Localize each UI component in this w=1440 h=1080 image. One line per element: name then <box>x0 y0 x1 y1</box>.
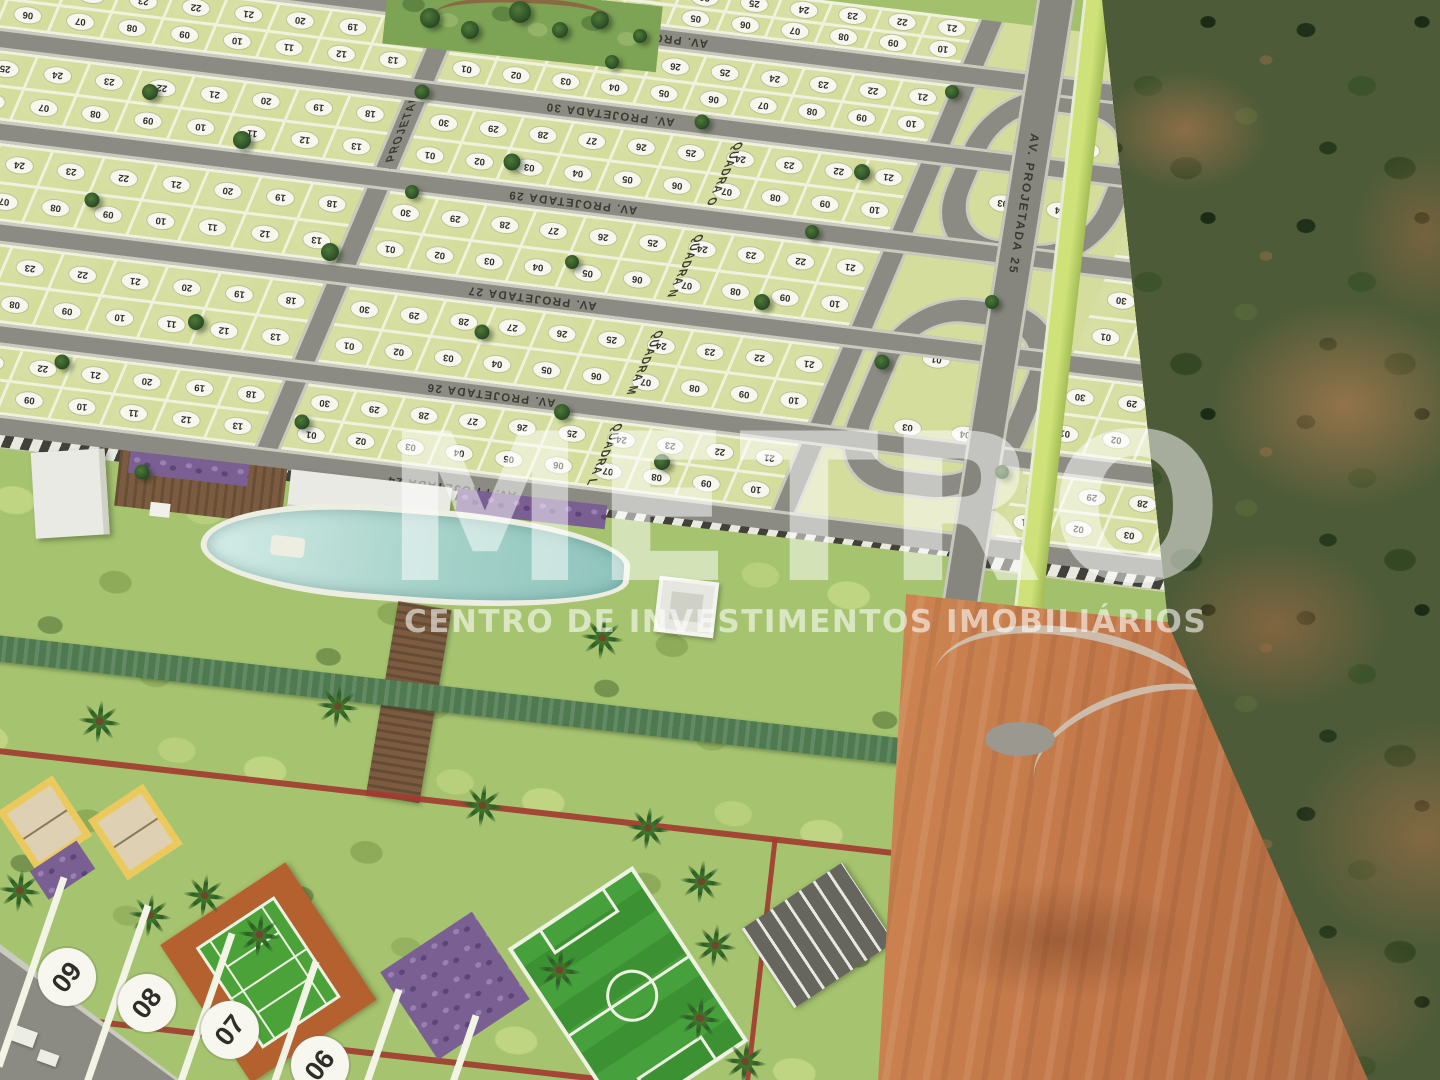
tree-bush <box>591 11 609 29</box>
lot-number-badge: 09 <box>879 33 908 52</box>
lot-number-badge: 25 <box>676 144 705 163</box>
tree-bush <box>405 185 419 199</box>
lot-cell: 28 <box>513 118 572 153</box>
lot-number-badge: 28 <box>528 126 557 145</box>
palm-tree-icon <box>677 857 726 906</box>
lot-number-badge: 12 <box>290 130 319 149</box>
lot-number-badge: 05 <box>574 264 603 283</box>
lot-number-badge: 23 <box>130 0 159 11</box>
lot-number-badge: 22 <box>888 13 917 32</box>
palm-tree-icon <box>578 613 627 662</box>
lot-number-badge: 23 <box>809 75 838 94</box>
lot-cell: 19 <box>287 90 349 125</box>
lot-number-badge: 23 <box>57 162 86 181</box>
lot-number-badge: 10 <box>222 32 251 51</box>
lot-number-badge: 21 <box>795 354 824 373</box>
lot-number-badge: 21 <box>755 448 784 467</box>
lot-cell: 09 <box>677 466 736 500</box>
lot-cell: 23 <box>795 69 852 99</box>
tree-bush <box>695 115 710 130</box>
lot-cell: 07 <box>767 19 821 42</box>
lot-cell: 03 <box>1099 518 1159 553</box>
lot-cell: 09 <box>866 31 920 54</box>
lot-number-badge: 30 <box>351 299 380 318</box>
lot-cell: 20 <box>116 364 177 399</box>
lot-number-badge: 10 <box>67 397 96 416</box>
tree-bush <box>854 164 870 180</box>
lot-number-badge: 08 <box>830 27 859 46</box>
lot-number-badge: 06 <box>699 90 728 109</box>
lot-number-badge: 13 <box>342 137 371 156</box>
lot-cell: 28 <box>394 398 453 432</box>
lot-number-badge: 21 <box>81 366 110 385</box>
lot-number-badge: 29 <box>400 306 429 325</box>
lot-cell: 10 <box>915 37 969 60</box>
lot-cell: 07 <box>734 91 791 121</box>
lot-number-badge: 10 <box>741 480 770 499</box>
palm-tree-icon <box>0 866 44 915</box>
palm-tree-icon <box>313 682 362 731</box>
tree-bush <box>85 193 100 208</box>
dirt-pond <box>985 722 1055 756</box>
lot-cell: 21 <box>64 358 125 393</box>
lot-number-badge: 07 <box>30 98 59 117</box>
lot-number-badge: 19 <box>225 284 254 303</box>
lot-number-badge: 19 <box>338 17 367 36</box>
lot-cell: 05 <box>669 7 723 30</box>
lot-cell: 25 <box>696 57 753 87</box>
lot-number-badge: 29 <box>360 400 389 419</box>
lot-cell: 09 <box>833 103 890 133</box>
lot-number-badge: 05 <box>495 450 524 469</box>
tree-bush <box>995 465 1009 479</box>
lot-number-badge: 06 <box>731 15 760 34</box>
lot-number-badge: 12 <box>327 44 356 63</box>
lot-number-badge: 30 <box>391 203 420 222</box>
lot-cell: 24 <box>26 58 88 93</box>
tree-bush <box>875 355 890 370</box>
lot-number-badge: 02 <box>1064 520 1093 539</box>
lot-cell: 02 <box>450 144 509 179</box>
lot-number-badge: 03 <box>434 348 463 367</box>
palm-tree-icon <box>721 1037 770 1080</box>
tree-bush <box>654 454 670 470</box>
lot-number-badge: 23 <box>656 436 685 455</box>
lot-number-badge: 08 <box>761 188 790 207</box>
tree-bush <box>142 84 158 100</box>
lot-number-badge: 08 <box>643 468 672 487</box>
lot-number-badge: 07 <box>780 21 809 40</box>
lot-number-badge: 20 <box>173 278 202 297</box>
palm-tree-icon <box>126 891 175 940</box>
tree-bush <box>233 131 251 149</box>
lot-number-badge: 09 <box>170 25 199 44</box>
lot-cell: 19 <box>322 11 382 41</box>
lot-number-badge: 02 <box>347 431 376 450</box>
lot-number-badge: 10 <box>146 211 175 230</box>
lot-number-badge: 26 <box>690 0 719 7</box>
lot-cell: 20 <box>270 5 330 35</box>
lot-number-badge: 03 <box>551 72 580 91</box>
lot-cell: 06 <box>685 85 742 115</box>
lot-number-badge: 09 <box>730 384 759 403</box>
lot-number-badge: 23 <box>0 353 5 372</box>
lot-cell: 05 <box>598 162 657 197</box>
lot-cell: 09 <box>0 383 60 418</box>
tree-bush <box>805 225 819 239</box>
palm-tree-icon <box>691 921 740 970</box>
lot-number-badge: 03 <box>396 438 425 457</box>
lot-number-badge: 09 <box>771 288 800 307</box>
lot-number-badge: 09 <box>94 205 123 224</box>
lot-cell: 22 <box>166 0 226 23</box>
lot-number-badge: 04 <box>564 164 593 183</box>
lot-number-badge: 27 <box>459 412 488 431</box>
lot-cell: 11 <box>221 116 283 151</box>
lot-number-badge: 19 <box>185 378 214 397</box>
lot-number-badge: 29 <box>479 120 508 139</box>
lot-cell: 10 <box>206 26 266 56</box>
lot-number-badge: 09 <box>692 474 721 493</box>
lot-number-badge: 23 <box>737 246 766 265</box>
palm-tree-icon <box>535 946 584 995</box>
tree-bush <box>633 29 647 43</box>
lot-number-badge: 08 <box>722 282 751 301</box>
lot-number-badge: 06 <box>582 366 611 385</box>
flower-bed-large <box>380 912 530 1060</box>
lot-number-badge: 13 <box>379 51 408 70</box>
dirt-shadow <box>930 880 1190 1000</box>
lot-cell: 26 <box>611 130 670 165</box>
lot-cell: 10 <box>169 109 231 144</box>
lot-number-badge: 28 <box>490 216 519 235</box>
palm-tree-icon <box>70 1044 119 1080</box>
tree-bush <box>475 325 490 340</box>
lot-number-badge: 28 <box>409 406 438 425</box>
lot-number-badge: 27 <box>499 318 528 337</box>
lot-number-badge: 22 <box>786 252 815 271</box>
lot-number-badge: 21 <box>874 168 903 187</box>
lot-number-badge: 25 <box>638 234 667 253</box>
lot-cell: 22 <box>131 71 193 106</box>
lot-cell: 19 <box>168 371 229 406</box>
lot-cell: 25 <box>542 416 601 450</box>
lot-number-badge: 13 <box>262 327 291 346</box>
lot-cell: 06 <box>529 448 588 482</box>
lot-number-badge: 13 <box>224 416 253 435</box>
lot-number-badge: 25 <box>0 60 20 79</box>
lot-number-badge: 05 <box>682 9 711 28</box>
lot-cell: 20 <box>235 84 297 119</box>
lot-number-badge: 21 <box>234 4 263 23</box>
lot-number-badge: 18 <box>237 385 266 404</box>
tree-bush <box>554 404 570 420</box>
lot-number-badge: 02 <box>426 245 455 264</box>
lot-number-badge: 09 <box>134 111 163 130</box>
lot-number-badge: 22 <box>68 265 97 284</box>
lot-number-badge: 22 <box>182 0 211 17</box>
lot-cell: 08 <box>783 97 840 127</box>
lot-number-badge: 04 <box>600 78 629 97</box>
lot-number-badge: 27 <box>641 0 670 1</box>
tree-bush <box>509 1 531 23</box>
lot-number-badge: 12 <box>209 320 238 339</box>
tree-bush <box>605 55 619 69</box>
lot-cell: 01 <box>438 54 495 84</box>
lot-cell: 04 <box>430 436 489 470</box>
lot-number-badge: 23 <box>775 156 804 175</box>
lot-number-badge: 24 <box>43 66 72 85</box>
lot-number-badge: 21 <box>200 85 229 104</box>
lot-number-badge: 02 <box>465 152 494 171</box>
lot-number-badge: 21 <box>908 87 937 106</box>
lot-cell: 22 <box>690 435 749 469</box>
lot-number-badge: 21 <box>121 271 150 290</box>
palm-tree-icon <box>235 910 284 959</box>
lot-cell: 29 <box>345 392 404 426</box>
lot-number-badge: 10 <box>928 39 957 58</box>
lot-cell: 23 <box>825 4 879 27</box>
lot-number-badge: 21 <box>937 19 966 38</box>
lot-number-badge: 22 <box>109 169 138 188</box>
masterplan-render: 3029282726252423222120191801020304050607… <box>0 0 1440 1080</box>
lot-cell: 29 <box>463 112 522 147</box>
lot-cell: 03 <box>381 430 440 464</box>
lot-cell: 12 <box>155 402 216 437</box>
lot-number-badge: 01 <box>452 60 481 79</box>
lot-cell: 11 <box>259 32 319 62</box>
palm-tree-icon <box>458 781 507 830</box>
lot-number-badge: 08 <box>681 378 710 397</box>
lot-number-badge: 09 <box>15 391 44 410</box>
lot-number-badge: 08 <box>118 19 147 38</box>
tree-bush <box>461 21 479 39</box>
lot-cell: 24 <box>776 0 830 22</box>
lot-number-badge: 11 <box>119 404 148 423</box>
lot-number-badge: 30 <box>430 113 459 132</box>
lot-number-badge: 20 <box>214 182 243 201</box>
lot-cell: 06 <box>0 0 57 30</box>
lot-number-badge: 08 <box>82 105 111 124</box>
lot-number-badge: 26 <box>548 324 577 343</box>
tree-bush <box>55 355 70 370</box>
tree-bush <box>420 8 440 28</box>
lot-cell: 08 <box>102 13 162 43</box>
lot-number-badge: 07 <box>748 96 777 115</box>
lot-number-badge: 26 <box>661 57 690 76</box>
lot-number-badge: 03 <box>475 252 504 271</box>
tree-bush <box>565 255 579 269</box>
tree-bush <box>945 85 959 99</box>
lot-number-badge: 11 <box>198 218 227 237</box>
lot-cell: 08 <box>817 25 871 48</box>
lot-cell: 26 <box>493 410 552 444</box>
lot-cell: 23 <box>78 64 140 99</box>
lot-number-badge: 26 <box>589 228 618 247</box>
lot-cell: 02 <box>487 60 544 90</box>
lot-cell: 09 <box>154 19 214 49</box>
lot-number-badge: 10 <box>896 114 925 133</box>
lot-number-badge: 18 <box>356 104 385 123</box>
lot-number-badge: 05 <box>533 360 562 379</box>
lot-number-badge: 24 <box>77 0 106 4</box>
lot-number-badge: 07 <box>0 192 18 211</box>
tree-bush <box>135 465 150 480</box>
lot-cell: 06 <box>718 13 772 36</box>
lot-cell: 25 <box>661 136 720 171</box>
lot-cell: 12 <box>311 39 371 69</box>
pool-steps <box>270 535 306 559</box>
lot-cell: 27 <box>562 124 621 159</box>
lot-number-badge: 09 <box>811 194 840 213</box>
lot-number-badge: 25 <box>740 0 769 14</box>
lot-number-badge: 29 <box>1117 394 1146 413</box>
lot-number-badge: 23 <box>16 258 45 277</box>
lot-number-badge: 27 <box>539 222 568 241</box>
lot-number-badge: 03 <box>1115 526 1144 545</box>
lot-cell: 08 <box>746 180 805 215</box>
lot-number-badge: 20 <box>286 11 315 30</box>
tree-bush <box>415 85 430 100</box>
lot-number-badge: 01 <box>416 146 445 165</box>
lot-number-badge: 05 <box>650 84 679 103</box>
lot-number-badge: 10 <box>860 200 889 219</box>
lot-number-badge: 27 <box>578 132 607 151</box>
lot-number-badge: 06 <box>14 6 43 25</box>
lot-number-badge: 21 <box>835 258 864 277</box>
tree-bush <box>295 415 310 430</box>
lot-number-badge: 19 <box>266 188 295 207</box>
penalty-box <box>636 1035 718 1080</box>
penalty-box <box>538 887 620 955</box>
lot-number-badge: 08 <box>1 295 30 314</box>
lot-number-badge: 21 <box>161 175 190 194</box>
lot-number-badge: 01 <box>376 239 405 258</box>
lot-cell: 06 <box>647 168 706 203</box>
sand-court <box>88 784 183 880</box>
lot-cell: 09 <box>117 103 179 138</box>
lot-number-badge: 18 <box>277 290 306 309</box>
lot-number-badge: 01 <box>1092 327 1121 346</box>
lot-number-badge: 08 <box>798 102 827 121</box>
lot-number-badge: 09 <box>53 301 82 320</box>
lot-cell: 02 <box>1048 512 1108 547</box>
lot-number-badge: 23 <box>95 72 124 91</box>
lot-number-badge: 06 <box>0 92 6 111</box>
lot-number-badge: 26 <box>508 418 537 437</box>
lot-cell: 04 <box>586 72 643 102</box>
lot-number-badge: 06 <box>623 270 652 289</box>
clubhouse-roof <box>31 448 110 538</box>
tree-bush <box>321 243 339 261</box>
bench <box>149 502 170 518</box>
lot-cell: 11 <box>102 396 163 431</box>
tree-bush <box>188 314 204 330</box>
lot-cell: 07 <box>50 7 110 37</box>
lot-number-badge: 18 <box>318 194 347 213</box>
lot-number-badge: 04 <box>524 258 553 277</box>
lot-cell: 04 <box>549 156 608 191</box>
lot-number-badge: 10 <box>105 308 134 327</box>
lot-number-badge: 11 <box>274 38 303 57</box>
lot-number-badge: 12 <box>171 410 200 429</box>
tree-bush <box>985 295 999 309</box>
lot-cell: 22 <box>875 10 929 33</box>
palm-tree-icon <box>624 804 673 853</box>
lot-number-badge: 28 <box>449 312 478 331</box>
lot-cell: 09 <box>795 186 854 221</box>
lot-number-badge: 11 <box>157 314 186 333</box>
lot-cell: 29 <box>1061 480 1121 515</box>
lot-cell: 12 <box>273 122 335 157</box>
lot-number-badge: 26 <box>627 138 656 157</box>
lot-number-badge: 23 <box>838 6 867 25</box>
lot-cell: 22 <box>844 75 901 105</box>
lot-cell: 05 <box>479 442 538 476</box>
lot-cell: 21 <box>218 0 278 29</box>
lot-number-badge: 09 <box>847 108 876 127</box>
lot-cell: 21 <box>924 16 978 39</box>
palm-tree-icon <box>180 871 229 920</box>
lot-number-badge: 22 <box>705 442 734 461</box>
palm-tree-icon <box>676 994 725 1043</box>
tree-bush <box>754 294 770 310</box>
lot-cell: 07 <box>13 90 75 125</box>
lot-number-badge: 04 <box>483 354 512 373</box>
lot-number-badge: 24 <box>789 0 818 19</box>
gazebo <box>653 576 719 638</box>
lot-number-badge: 30 <box>1107 291 1136 310</box>
lot-number-badge: 25 <box>597 330 626 349</box>
lot-number-badge: 22 <box>28 359 57 378</box>
lot-number-badge: 06 <box>663 176 692 195</box>
lot-number-badge: 25 <box>557 424 586 443</box>
lot-number-badge: 12 <box>250 224 279 243</box>
lot-cell: 23 <box>759 148 818 183</box>
lot-cell: 21 <box>183 77 245 112</box>
lot-cell: 23 <box>641 429 700 463</box>
lot-cell: 10 <box>50 389 111 424</box>
lot-number-badge: 19 <box>304 98 333 117</box>
lot-number-badge: 28 <box>1129 494 1158 513</box>
palm-tree-icon <box>75 697 124 746</box>
lot-number-badge: 22 <box>859 81 888 100</box>
lot-number-badge: 20 <box>252 92 281 111</box>
lot-number-badge: 22 <box>745 348 774 367</box>
lot-number-badge: 05 <box>613 170 642 189</box>
lot-number-badge: 10 <box>186 117 215 136</box>
lot-number-badge: 02 <box>502 66 531 85</box>
lot-number-badge: 04 <box>445 444 474 463</box>
lot-cell: 24 <box>746 63 803 93</box>
lot-number-badge: 29 <box>1077 488 1106 507</box>
lot-number-badge: 10 <box>779 390 808 409</box>
lot-number-badge: 22 <box>824 162 853 181</box>
lot-cell: 02 <box>331 424 390 458</box>
lot-cell: 03 <box>537 66 594 96</box>
tree-bush <box>504 154 521 171</box>
lot-number-badge: 02 <box>1102 430 1131 449</box>
tree-bush <box>552 22 568 38</box>
parking-lot <box>742 863 895 1008</box>
lot-cell: 05 <box>635 79 692 109</box>
hedge-canal <box>0 630 923 767</box>
lot-number-badge: 01 <box>335 336 364 355</box>
lot-cell: 08 <box>65 96 127 131</box>
lot-number-badge: 20 <box>133 372 162 391</box>
lot-cell: 27 <box>443 404 502 438</box>
lot-number-badge: 29 <box>441 210 470 229</box>
